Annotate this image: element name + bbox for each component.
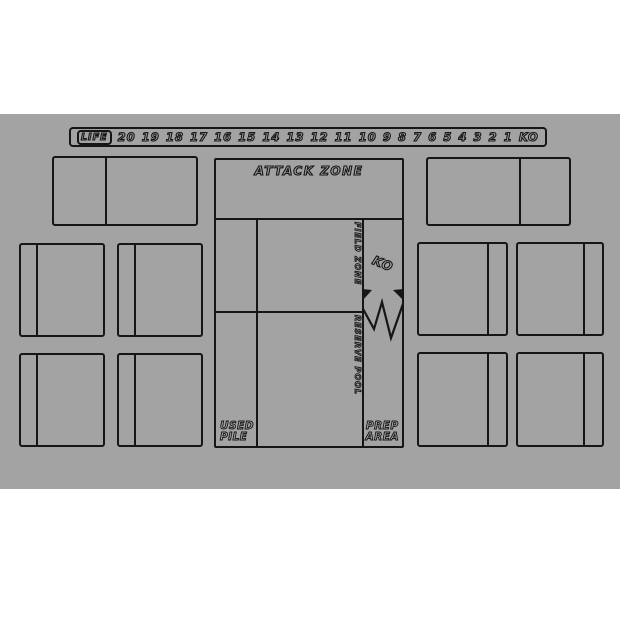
zone-divider <box>105 158 107 224</box>
zone-divider <box>487 244 489 334</box>
life-value: 9 <box>383 130 392 144</box>
field-zone: FIELD ZONE <box>258 220 362 313</box>
life-value: 16 <box>214 130 232 144</box>
zone-divider <box>36 245 38 335</box>
ko-zone-label: KO <box>363 249 404 277</box>
left-column-upper-cell <box>216 220 256 313</box>
card-slot-left-1 <box>19 243 105 337</box>
double-card-zone-top-right <box>426 157 571 226</box>
attack-zone: ATTACK ZONE <box>216 160 402 220</box>
zone-divider <box>134 245 136 335</box>
life-value: 1 <box>504 130 513 144</box>
life-value: 20 <box>118 130 136 144</box>
right-column: KO PREP AREA <box>364 220 402 446</box>
life-value: 17 <box>190 130 208 144</box>
life-value: KO <box>519 130 539 144</box>
zone-divider <box>134 355 136 445</box>
ko-burst-icon <box>362 283 404 351</box>
card-slot-right-3 <box>417 352 508 447</box>
life-value: 4 <box>458 130 467 144</box>
life-value: 14 <box>262 130 280 144</box>
life-value: 10 <box>359 130 377 144</box>
used-pile-label: USED PILE <box>220 421 254 443</box>
life-value: 15 <box>238 130 256 144</box>
middle-column: FIELD ZONE RESERVE POOL <box>258 220 364 446</box>
life-value: 19 <box>142 130 160 144</box>
reserve-pool-label: RESERVE POOL <box>352 315 362 395</box>
life-value: 7 <box>413 130 422 144</box>
prep-area-label: PREP AREA <box>365 421 399 443</box>
life-value: 12 <box>311 130 329 144</box>
used-pile-zone: USED PILE <box>216 313 256 446</box>
life-value: 18 <box>166 130 184 144</box>
life-value: 13 <box>286 130 304 144</box>
double-card-zone-top-left <box>52 156 198 226</box>
zone-divider <box>487 354 489 445</box>
life-value: 8 <box>398 130 407 144</box>
left-column: USED PILE <box>216 220 258 446</box>
life-value: 6 <box>428 130 437 144</box>
attack-zone-label: ATTACK ZONE <box>255 164 364 178</box>
field-zone-label: FIELD ZONE <box>352 222 362 285</box>
life-value: 11 <box>335 130 353 144</box>
zone-divider <box>583 244 585 334</box>
reserve-pool-zone: RESERVE POOL <box>258 313 362 446</box>
life-track-label: LIFE <box>77 130 112 145</box>
central-board: ATTACK ZONE USED PILE FIELD ZONE RESERVE… <box>214 158 404 448</box>
life-track: LIFE 2019181716151413121110987654321KO <box>69 127 547 147</box>
card-slot-left-3 <box>19 353 105 447</box>
zone-divider <box>583 354 585 445</box>
card-slot-right-1 <box>417 242 508 336</box>
card-slot-right-4 <box>516 352 604 447</box>
life-value: 3 <box>474 130 483 144</box>
card-slot-left-4 <box>117 353 203 447</box>
life-value: 2 <box>489 130 498 144</box>
life-value: 5 <box>443 130 452 144</box>
zone-divider <box>519 159 521 224</box>
card-slot-left-2 <box>117 243 203 337</box>
zone-divider <box>36 355 38 445</box>
card-slot-right-2 <box>516 242 604 336</box>
